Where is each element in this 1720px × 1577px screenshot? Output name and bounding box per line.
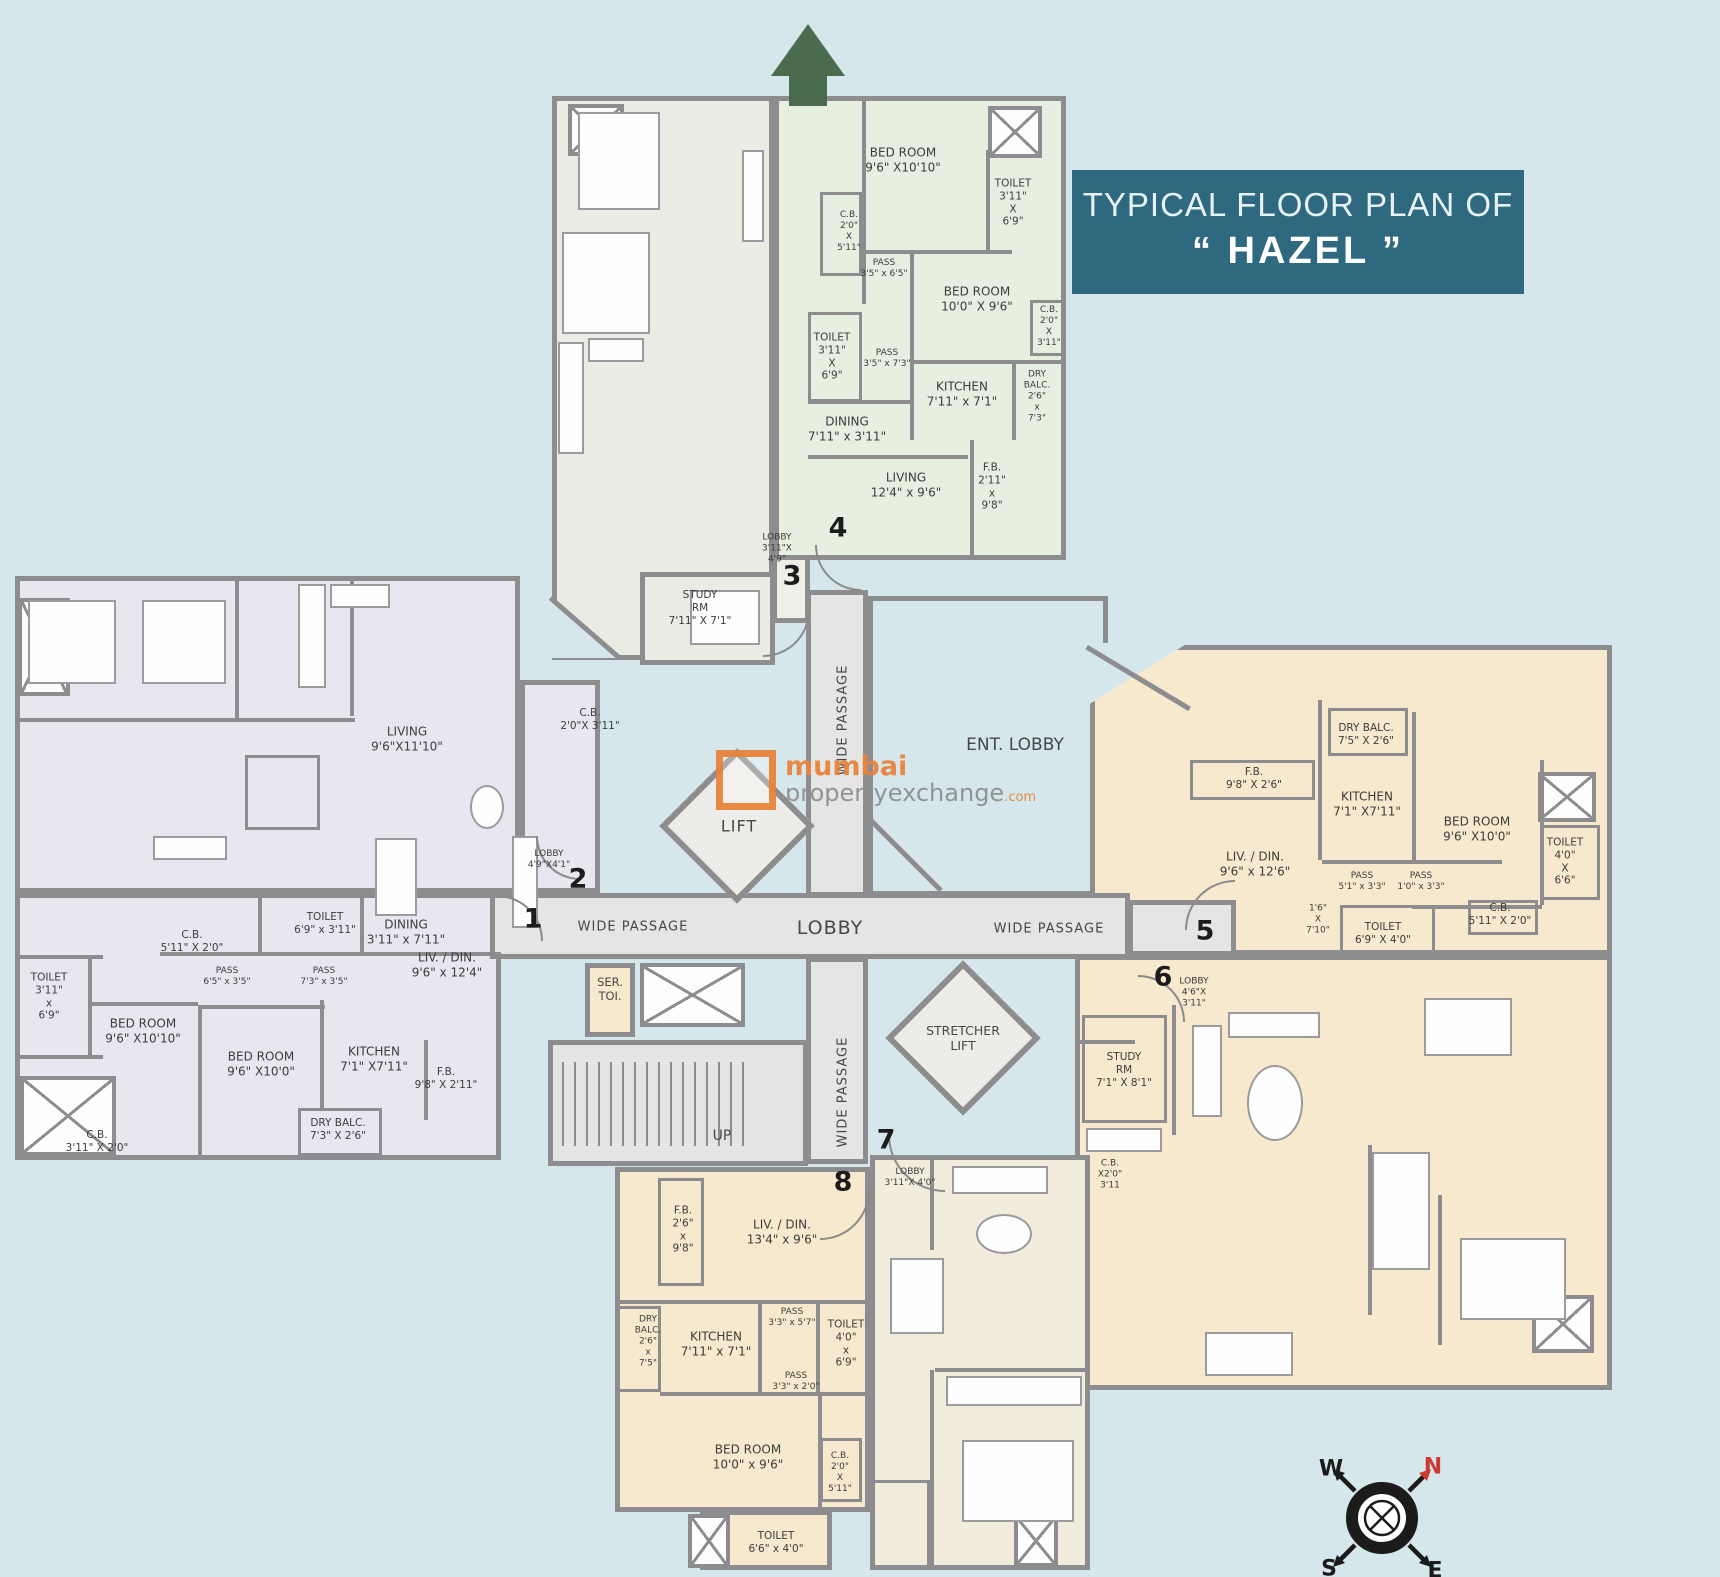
room-label: 1'6"X 7'10" (1306, 904, 1330, 937)
furniture-sofa (952, 1166, 1048, 1194)
unit-number-4: 4 (829, 513, 848, 544)
room-label: TOILET3'11" X 6'9" (814, 331, 851, 382)
wall (15, 718, 355, 722)
room-label: BED ROOM9'6" X10'0" (227, 1049, 295, 1078)
wall (910, 250, 914, 440)
room-label: DRY BALC.7'3" X 2'6" (310, 1117, 366, 1143)
room-label: PASS6'5" x 3'5" (203, 966, 250, 988)
room-label: TOILET3'11" X 6'9" (995, 177, 1032, 228)
door-arc (763, 610, 810, 657)
room-label: LOBBY3'11"X 4'0" (885, 1167, 936, 1189)
plan-title-line1: TYPICAL FLOOR PLAN OF (1072, 186, 1524, 224)
room-label: LIVING9'6"X11'10" (371, 724, 443, 753)
door-arc (815, 545, 861, 591)
furniture-kitchen-counter (946, 1376, 1082, 1406)
furniture-kitchen-counter (298, 584, 326, 688)
furniture-kitchen-counter (330, 584, 390, 608)
duct-hatch (988, 106, 1042, 158)
room-label: TOILET6'6" x 4'0" (748, 1530, 803, 1556)
wall (808, 455, 968, 459)
duct-hatch (1014, 1515, 1058, 1567)
wall (660, 1392, 870, 1396)
furniture-table (976, 1214, 1032, 1254)
duct-hatch (640, 963, 745, 1027)
furniture-piano (1086, 1128, 1162, 1152)
room-label: DINING3'11" x 7'11" (367, 917, 445, 946)
duct-hatch (1538, 772, 1596, 822)
wide-passage-label: WIDE PASSAGE (578, 920, 689, 935)
room-label: STUDY RM7'11" X 7'1" (669, 589, 732, 627)
room-label: LIV. / DIN.9'6" x 12'6" (1220, 849, 1291, 878)
furniture-bed (1460, 1238, 1566, 1320)
unit-number-7: 7 (877, 1125, 896, 1156)
room-label: DRY BALC.2'6" x 7'5" (635, 1315, 662, 1370)
furniture-kitchen-counter (558, 342, 584, 454)
wall (360, 893, 364, 953)
room-label: BED ROOM10'0" x 9'6" (713, 1442, 784, 1471)
unit-number-5: 5 (1196, 916, 1215, 947)
wall (970, 440, 974, 560)
wall (1172, 1005, 1176, 1135)
room-label: C.B.5'11" X 2'0" (1469, 902, 1532, 928)
furniture-kitchen-counter (1372, 1152, 1430, 1270)
wall (1438, 1195, 1442, 1345)
room-label: C.B.2'0"X 3'11" (560, 707, 619, 733)
furniture-sofa (1192, 1025, 1222, 1117)
duct-hatch (688, 1514, 730, 1568)
unit-number-2: 2 (569, 864, 588, 895)
room-label: DINING7'11" x 3'11" (808, 414, 886, 443)
service-toilet-label: SER. TOI. (597, 975, 623, 1003)
wall (615, 1300, 870, 1304)
room-label: TOILET4'0" x 6'9" (828, 1318, 865, 1369)
room-label: C.B.3'11" X 2'0" (66, 1129, 129, 1155)
furniture-dining-table (1424, 998, 1512, 1056)
watermark-logo-icon (716, 750, 776, 810)
room-label: PASS3'5" x 7'3" (863, 348, 910, 370)
wall (930, 1370, 934, 1570)
wide-passage-label: WIDE PASSAGE (994, 922, 1105, 937)
furniture-piano (153, 836, 227, 860)
room-label: DRY BALC.7'5" X 2'6" (1338, 722, 1394, 748)
room-label: C.B.5'11" X 2'0" (161, 929, 224, 955)
room-label: BED ROOM10'0" X 9'6" (941, 284, 1013, 313)
room-label: TOILET3'11" x 6'9" (31, 971, 68, 1022)
room-label: PASS1'0" x 3'3" (1397, 871, 1444, 893)
room-label: F.B.9'8" X 2'6" (1226, 766, 1282, 792)
lift-label: LIFT (721, 817, 757, 836)
room-label: LIVING12'4" x 9'6" (871, 470, 942, 499)
room-label: KITCHEN7'1" X7'11" (340, 1044, 408, 1073)
furniture-dining-table (890, 1258, 944, 1334)
wall (320, 1000, 324, 1110)
compass-south-label: S (1321, 1557, 1337, 1577)
toilet-enclosure (245, 755, 320, 830)
room-label: LIV. / DIN.13'4" x 9'6" (747, 1217, 818, 1246)
room-label: KITCHEN7'1" X7'11" (1333, 789, 1401, 818)
room-label: LOBBY4'9"X4'1" (528, 849, 570, 871)
stretcher-lift-label: STRETCHER LIFT (926, 1023, 1000, 1053)
room-label: PASS7'3" x 3'5" (300, 966, 347, 988)
unit-number-3: 3 (783, 561, 802, 592)
wall (758, 1300, 762, 1392)
toilet-enclosure (872, 1480, 930, 1568)
compass-west-label: W (1319, 1457, 1343, 1482)
room-label: F.B.2'11" x 9'8" (978, 461, 1006, 512)
north-arrow-icon (789, 74, 827, 106)
wall (1412, 712, 1416, 862)
compass-east-label: E (1427, 1559, 1442, 1577)
room-label: PASS3'3" x 2'0" (772, 1371, 819, 1393)
furniture-dining-table (375, 838, 417, 916)
room-label: C.B.X2'0" 3'11 (1098, 1159, 1122, 1192)
room-label: KITCHEN7'11" x 7'1" (927, 379, 998, 408)
wall (1318, 700, 1322, 860)
furniture-wardrobe (742, 150, 764, 242)
room-label: TOILET6'9" x 3'11" (294, 911, 356, 937)
room-label: LOBBY4'6"X 3'11" (1179, 977, 1208, 1010)
room-label: PASS3'3" x 5'7" (768, 1307, 815, 1329)
watermark-brand2: propertyexchange.com (785, 780, 1036, 806)
wall (910, 360, 1066, 364)
furniture-bed (142, 600, 226, 684)
plan-title-line2: “ HAZEL ” (1072, 230, 1524, 273)
furniture-bed (962, 1440, 1074, 1522)
room-label: KITCHEN7'11" x 7'1" (681, 1329, 752, 1358)
unit-number-8: 8 (834, 1167, 853, 1198)
lobby-label: LOBBY (797, 917, 864, 939)
wall (935, 1368, 1090, 1372)
wall (258, 893, 262, 953)
room-label: DRY BALC.2'6" x 7'3" (1024, 370, 1051, 425)
wall (15, 1055, 103, 1059)
room-label: BED ROOM9'6" X10'10" (105, 1016, 180, 1045)
wall (200, 1005, 325, 1009)
furniture-table (470, 785, 504, 829)
room-label: BED ROOM9'6" X10'10" (865, 145, 940, 174)
room-label: BED ROOM9'6" X10'0" (1443, 814, 1511, 843)
room-label: PASS3'5" x 6'5" (860, 258, 907, 280)
furniture-bed (578, 112, 660, 210)
unit-number-6: 6 (1154, 962, 1173, 993)
room-label: LIV. / DIN.9'6" x 12'4" (412, 950, 483, 979)
wall (235, 576, 239, 721)
furniture-table (1247, 1065, 1303, 1141)
room-label: STUDY RM7'1" X 8'1" (1096, 1051, 1152, 1089)
room-label: TOILET6'9" X 4'0" (1355, 921, 1411, 947)
room-label: C.B.2'0" X 3'11" (1037, 305, 1061, 349)
unit-number-1: 1 (524, 904, 543, 935)
room-label: C.B.2'0" X 5'11" (837, 210, 861, 254)
room-label: TOILET4'0" X 6'6" (1547, 836, 1584, 887)
room-label: F.B.9'8" X 2'11" (415, 1066, 478, 1092)
north-arrow-icon (771, 24, 845, 76)
wall (1075, 1040, 1135, 1044)
watermark-brand: mumbai (785, 753, 1036, 780)
furniture-kitchen-counter (588, 338, 644, 362)
wall (198, 1005, 202, 1160)
wall (986, 150, 990, 254)
furniture-bed (28, 600, 116, 684)
furniture-table (1205, 1332, 1293, 1376)
watermark: mumbai propertyexchange.com (716, 750, 1036, 810)
wall (88, 1002, 198, 1006)
room-label: PASS5'1" x 3'3" (1338, 871, 1385, 893)
wide-passage-label: WIDE PASSAGE (836, 1037, 851, 1148)
floor-plan: BED ROOM9'6" X10'10" TOILET3'11" X 6'9" … (0, 0, 1720, 1577)
room-label: F.B.2'6" x 9'8" (672, 1204, 693, 1255)
furniture-bed (562, 232, 650, 334)
up-label: UP (713, 1128, 732, 1144)
wall (1012, 360, 1016, 440)
compass-rose-icon: W N S E (1307, 1443, 1457, 1577)
compass-north-label: N (1424, 1455, 1442, 1480)
watermark-text: mumbai propertyexchange.com (785, 753, 1036, 806)
room-label: C.B.2'0" X 5'11" (828, 1451, 852, 1495)
furniture-sofa (1228, 1012, 1320, 1038)
plan-title: TYPICAL FLOOR PLAN OF “ HAZEL ” (1072, 170, 1524, 294)
